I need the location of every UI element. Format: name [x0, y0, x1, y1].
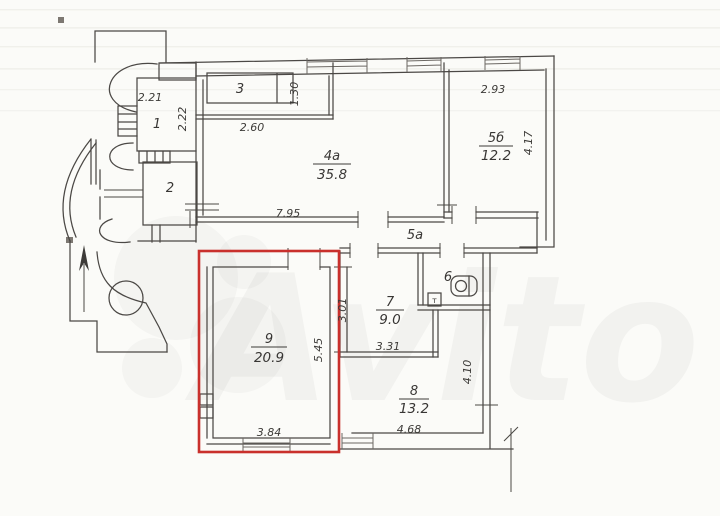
floor-plan-svg: Avito	[0, 0, 720, 516]
room8-label: 8	[410, 384, 418, 399]
balcony-arc	[63, 139, 91, 241]
room8-area: 13.2	[399, 401, 429, 417]
room6-label: 6	[444, 270, 452, 285]
watermark-text: Avito	[184, 239, 700, 442]
room2-label: 2	[166, 181, 174, 196]
room5a-label: 5a	[407, 228, 423, 243]
dim-room8-depth: 4.10	[461, 360, 474, 385]
balcony-arc	[70, 143, 96, 237]
dim-room3-width: 2.60	[240, 121, 265, 134]
bay-window-top	[109, 63, 157, 112]
watermark-dot	[122, 338, 182, 398]
dim-room3-depth: 1.30	[288, 82, 301, 107]
water-tank-label: т	[432, 296, 437, 305]
scan-speck	[58, 17, 64, 23]
door-room1	[139, 151, 170, 163]
room9-label: 9	[265, 332, 273, 347]
dim-room9-width: 3.84	[257, 426, 282, 439]
dim-room8-width: 4.68	[397, 423, 422, 436]
dim-room1-width: 2.21	[138, 91, 163, 104]
room4a-label: 4a	[324, 149, 340, 164]
dim-room5b-width: 2.93	[481, 83, 506, 96]
dim-room7-width: 3.31	[376, 340, 401, 353]
room9-area: 20.9	[254, 350, 284, 366]
bay-window-mid	[110, 143, 133, 170]
room3-label: 3	[236, 82, 244, 97]
dim-room4a-width: 7.95	[276, 207, 301, 220]
direction-arrow	[79, 245, 89, 312]
floor-plan-page: Avito	[0, 0, 720, 516]
bay-window-low	[100, 219, 130, 243]
dim-room9-depth: 5.45	[312, 338, 325, 363]
room5b-area: 12.2	[481, 148, 511, 164]
room7-area: 9.0	[379, 312, 400, 328]
room5b-label: 5б	[488, 131, 504, 146]
scan-artifacts	[0, 9, 720, 243]
dim-room1-depth: 2.22	[176, 107, 189, 132]
room1-label: 1	[153, 117, 161, 132]
dim-room7-depth: 3.01	[336, 298, 349, 323]
room7-label: 7	[386, 295, 395, 310]
room4a-area: 35.8	[317, 167, 347, 183]
dim-room5b-depth: 4.17	[522, 131, 535, 156]
